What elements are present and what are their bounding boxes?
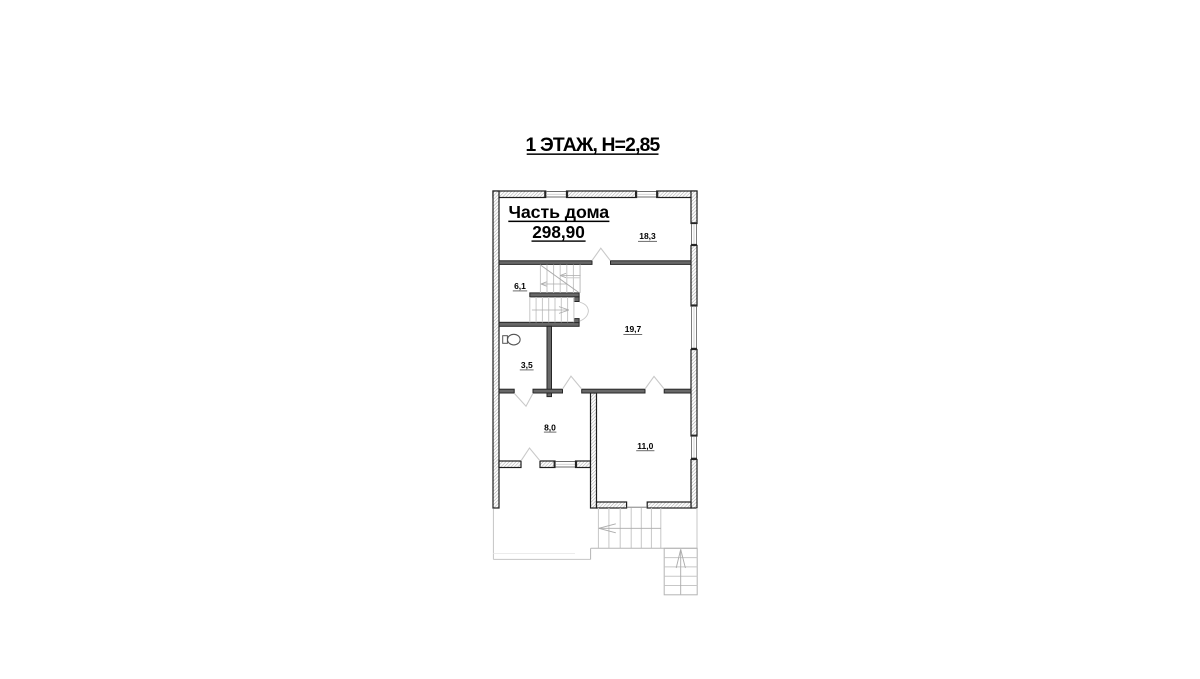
- svg-text:298,90: 298,90: [532, 222, 585, 242]
- svg-text:8,0: 8,0: [544, 422, 556, 432]
- svg-text:6,1: 6,1: [514, 281, 526, 291]
- svg-text:1 ЭТАЖ, Н=2,85: 1 ЭТАЖ, Н=2,85: [526, 135, 661, 156]
- svg-text:Часть дома: Часть дома: [509, 202, 610, 222]
- svg-text:19,7: 19,7: [625, 324, 642, 334]
- svg-text:3,5: 3,5: [521, 360, 533, 370]
- svg-text:11,0: 11,0: [637, 441, 653, 451]
- svg-text:18,3: 18,3: [639, 231, 656, 241]
